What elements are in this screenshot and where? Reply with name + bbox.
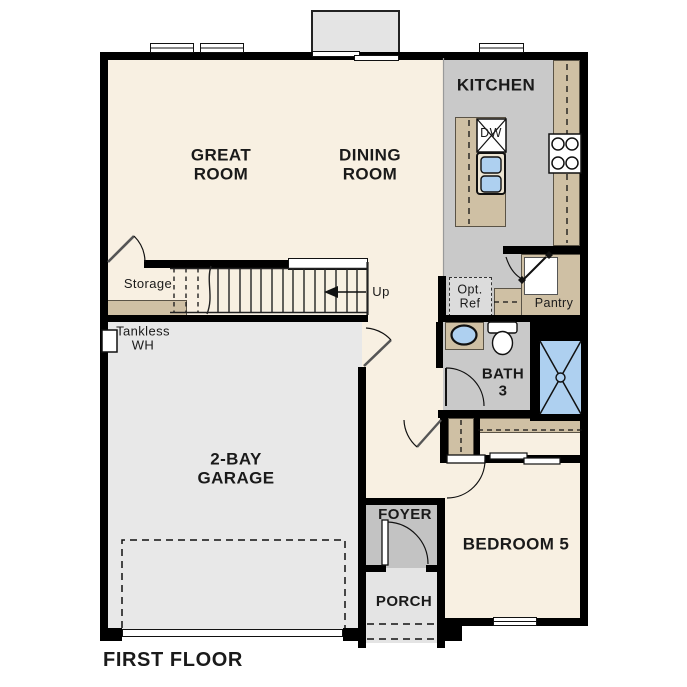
window-great-room-1 [150,43,194,53]
great-room-label: GREATROOM [191,146,251,183]
wall-garage-bottom-left [100,628,122,641]
garage-door [122,629,343,637]
fireplace-bumpout [311,10,400,56]
storage-label: Storage [124,277,172,291]
wall-pantry-top [503,246,588,254]
dishwasher-label: DW [480,127,502,141]
opt-ref-label: Opt.Ref [457,283,482,311]
kitchen-label: KITCHEN [457,77,535,96]
sliding-glass-door-right-panel [354,55,399,61]
storage-shelf [103,300,187,316]
ref-side-cabinet [494,288,522,317]
sliding-glass-door-left-panel [312,51,360,57]
wall-closet-divider [474,418,480,460]
pantry-interior [524,257,558,295]
wall-bath-left [436,322,443,368]
window-kitchen [479,43,524,53]
bath-vanity [445,322,484,350]
bedroom5-label: BEDROOM 5 [463,536,570,555]
wall-garage-right [358,367,366,648]
wall-left [100,52,108,641]
wall-foyer-top [358,498,445,505]
tankless-wh-label: TanklessWH [116,325,170,354]
wall-ref-stub [438,276,446,322]
linen-closet [448,418,474,458]
wall-foyer-porch-left [358,565,386,572]
dining-room-label: DININGROOM [339,146,401,183]
wall-garage-top [100,315,368,322]
wall-bath-top [438,315,588,322]
floor-title: FIRST FLOOR [103,649,243,672]
wall-garage-bottom-right [343,628,365,641]
foyer-label: FOYER [378,507,432,524]
garage-label: 2-BAYGARAGE [197,450,274,487]
porch-label: PORCH [376,594,432,611]
stair-railing [288,258,368,270]
up-label: Up [372,285,389,299]
wall-foyer-porch-right [426,565,445,572]
bath3-label: BATH3 [482,367,524,400]
shower-pan [540,341,581,414]
wall-porch-corner [440,622,462,641]
floor-plan: GREATROOM DININGROOM KITCHEN 2-BAYGARAGE… [0,0,687,687]
kitchen-counter [553,60,580,246]
window-great-room-2 [200,43,244,53]
window-bedroom5 [493,617,537,626]
pantry-label: Pantry [535,297,574,311]
wall-stairs-top [144,260,290,268]
wall-bedroom-top [440,455,588,463]
